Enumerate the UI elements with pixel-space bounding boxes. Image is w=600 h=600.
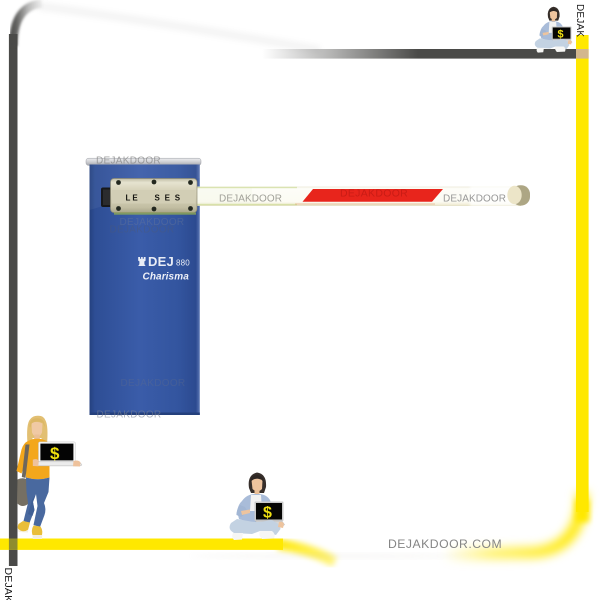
svg-text:$: $ bbox=[263, 505, 272, 522]
svg-text:LE: LE bbox=[126, 194, 140, 203]
svg-text:DEJAKDOOR.COM: DEJAKDOOR.COM bbox=[388, 537, 502, 551]
svg-text:DEJAKDOOR: DEJAKDOOR bbox=[121, 378, 186, 389]
svg-text:DEJAKDOOR: DEJAKDOOR bbox=[219, 194, 282, 205]
svg-text:DEJAKDOOR: DEJAKDOOR bbox=[96, 156, 161, 167]
svg-text:DEJAKDOOR: DEJAKDOOR bbox=[97, 410, 162, 421]
svg-text:DEJ: DEJ bbox=[148, 254, 174, 269]
svg-text:DEJAKDOOR: DEJAKDOOR bbox=[110, 225, 175, 236]
svg-text:DEJAKDOOR: DEJAKDOOR bbox=[340, 188, 408, 200]
svg-text:DEJAKDOOR: DEJAKDOOR bbox=[443, 194, 506, 205]
svg-text:DEJAK: DEJAK bbox=[2, 568, 14, 600]
svg-text:$: $ bbox=[50, 444, 60, 463]
svg-text:880: 880 bbox=[176, 259, 190, 268]
svg-text:Charisma: Charisma bbox=[143, 272, 190, 283]
svg-text:DEJAK: DEJAK bbox=[574, 4, 585, 37]
svg-text:SES: SES bbox=[155, 194, 185, 203]
